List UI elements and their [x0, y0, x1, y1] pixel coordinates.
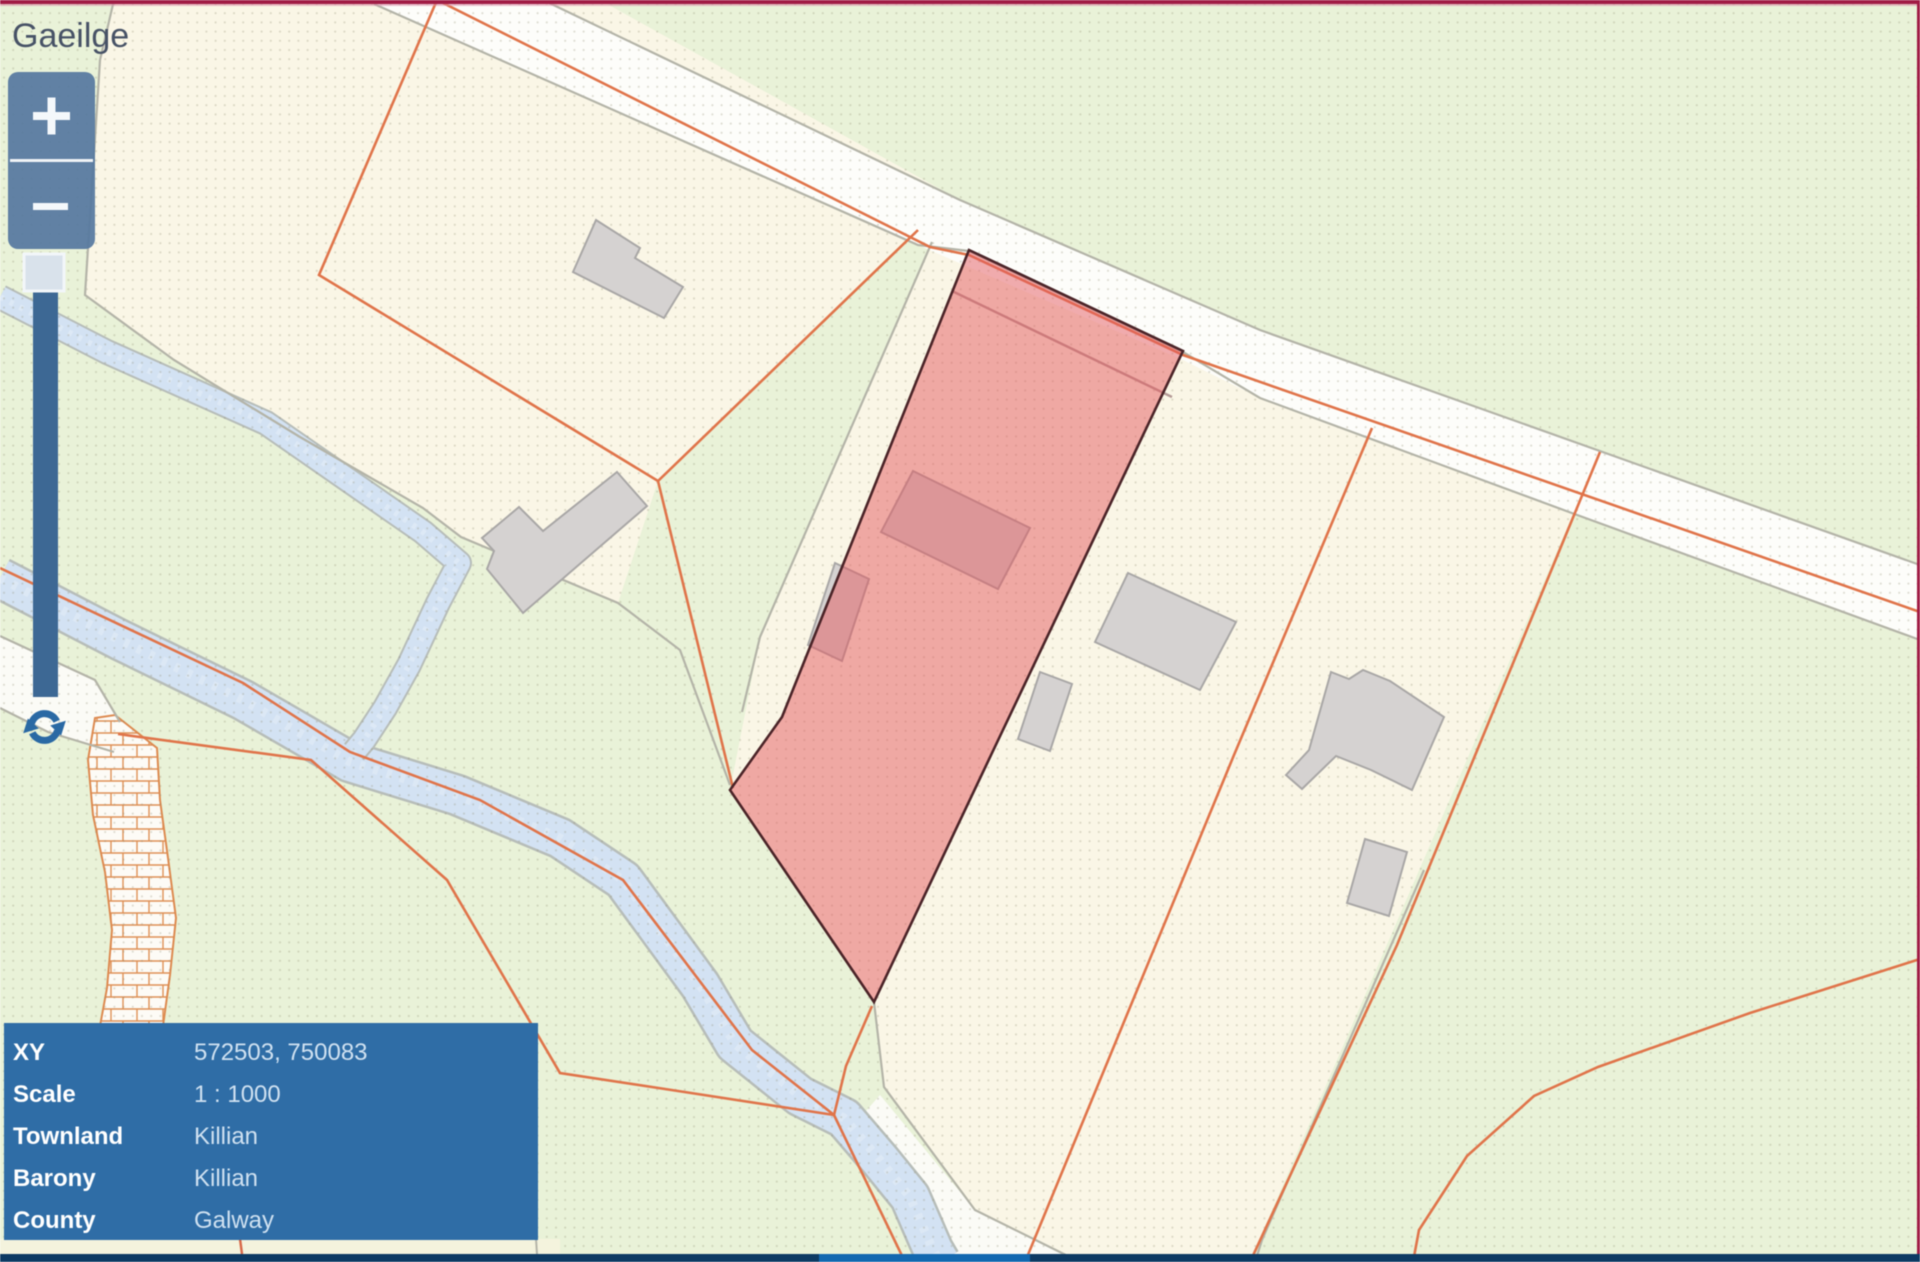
svg-text:Killian: Killian [194, 1165, 258, 1192]
svg-text:Gaeilge: Gaeilge [12, 17, 129, 55]
svg-text:1 : 1000: 1 : 1000 [194, 1081, 281, 1108]
svg-text:Barony: Barony [13, 1165, 96, 1192]
svg-text:Killian: Killian [194, 1123, 258, 1150]
svg-text:Townland: Townland [13, 1123, 123, 1150]
svg-text:XY: XY [13, 1039, 45, 1066]
svg-text:572503, 750083: 572503, 750083 [194, 1039, 368, 1066]
svg-text:Scale: Scale [13, 1081, 76, 1108]
svg-text:Galway: Galway [194, 1207, 274, 1234]
svg-text:County: County [13, 1207, 96, 1234]
